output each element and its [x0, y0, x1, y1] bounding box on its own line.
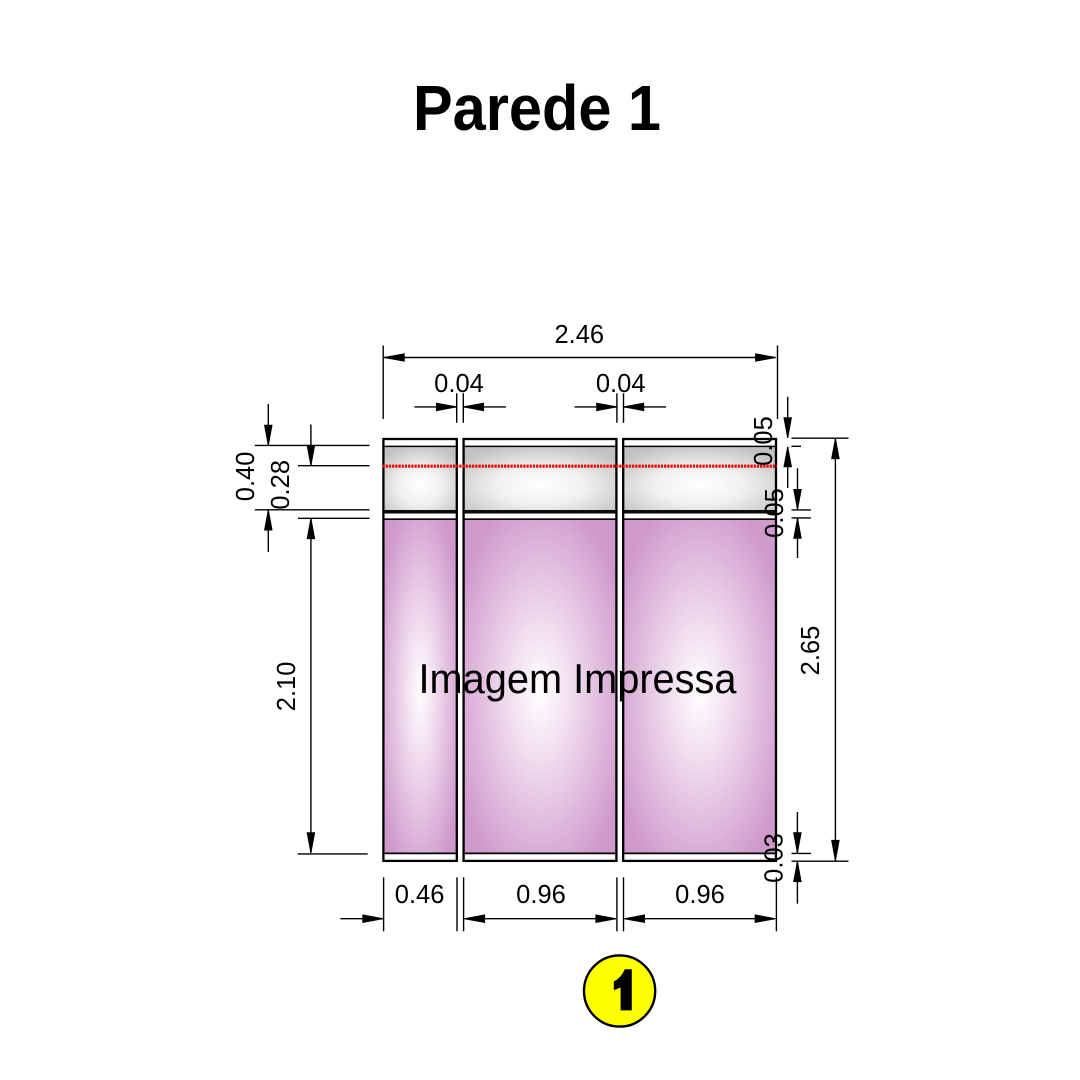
svg-text:2.65: 2.65 [797, 626, 825, 676]
svg-text:0.46: 0.46 [395, 881, 445, 909]
svg-text:0.04: 0.04 [434, 370, 484, 398]
svg-text:0.03: 0.03 [761, 833, 789, 883]
svg-text:Imagem Impressa: Imagem Impressa [419, 655, 738, 702]
svg-text:0.04: 0.04 [596, 370, 646, 398]
svg-text:0.05: 0.05 [761, 488, 789, 538]
svg-text:0.96: 0.96 [675, 881, 725, 909]
svg-text:0.96: 0.96 [516, 881, 566, 909]
svg-text:0.40: 0.40 [232, 452, 260, 502]
svg-text:2.10: 2.10 [273, 662, 301, 712]
svg-text:0.28: 0.28 [267, 460, 295, 510]
svg-text:0.05: 0.05 [750, 416, 778, 466]
svg-text:2.46: 2.46 [554, 321, 604, 349]
svg-text:Parede 1: Parede 1 [413, 72, 661, 144]
